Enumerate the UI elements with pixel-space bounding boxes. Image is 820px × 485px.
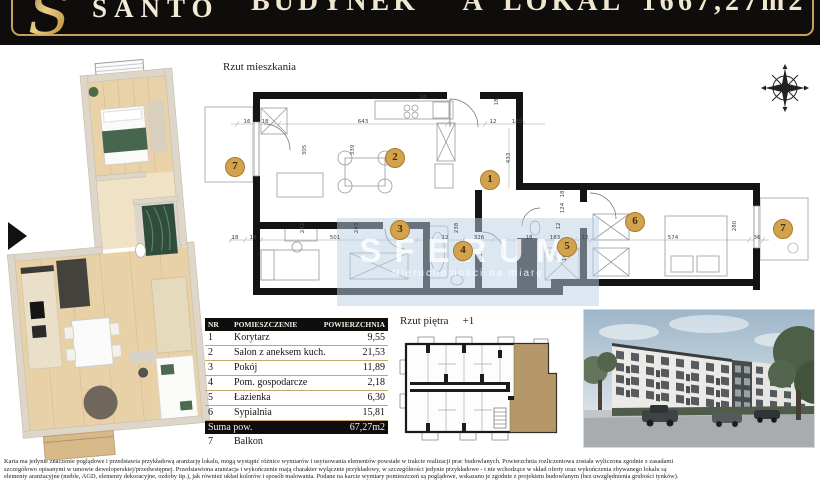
svg-text:S: S bbox=[28, 0, 70, 45]
header-bar: S SANTO BUDYNEK A LOKAL 16 67,27m2 bbox=[0, 0, 820, 45]
dimension-label: 12 bbox=[556, 223, 562, 230]
table-cell: 1 bbox=[208, 331, 234, 345]
apartment-3d-render bbox=[0, 58, 215, 460]
room-marker-7: 7 bbox=[773, 219, 793, 239]
dimension-label: 501 bbox=[330, 235, 341, 241]
table-cell: Łazienka bbox=[234, 391, 368, 405]
table-cell: 4 bbox=[208, 376, 234, 390]
dimension-label: 574 bbox=[668, 235, 679, 241]
table-row: 1Korytarz9,55 bbox=[205, 331, 388, 346]
table-cell: Salon z aneksem kuch. bbox=[234, 346, 363, 360]
disclaimer-line-1: Karta ma jedynie znaczenie poglądowe i p… bbox=[4, 458, 816, 466]
table-cell: 11,89 bbox=[363, 361, 385, 375]
disclaimer-line-3: elementy aranżacyjne (meble, AGD, elemen… bbox=[4, 473, 816, 481]
dimension-label: 12 bbox=[490, 119, 497, 125]
room-table: NR POMIESZCZENIE POWIERZCHNIA 1Korytarz9… bbox=[205, 318, 388, 448]
col-nr: NR bbox=[208, 318, 234, 331]
building-render-photo bbox=[583, 309, 815, 448]
disclaimer-line-2: szczegółowo opisanymi w umowie deweloper… bbox=[4, 466, 816, 474]
room-marker-6: 6 bbox=[625, 212, 645, 232]
table-row: 4Pom. gospodarcze2,18 bbox=[205, 376, 388, 391]
dimension-label: 18 bbox=[232, 235, 239, 241]
dimension-label: 433 bbox=[506, 153, 512, 164]
room-marker-4: 4 bbox=[453, 241, 473, 261]
dimension-label: 305 bbox=[302, 145, 308, 156]
room-marker-2: 2 bbox=[385, 148, 405, 168]
table-total-row: Suma pow. 67,27m2 bbox=[205, 421, 388, 434]
compass-icon bbox=[761, 64, 809, 112]
dimension-label: 16 bbox=[244, 119, 251, 125]
watermark: SFERUM Nieruchomości na miarę bbox=[337, 218, 599, 306]
table-cell: 5 bbox=[208, 391, 234, 405]
table-row: 5Łazienka6,30 bbox=[205, 391, 388, 406]
table-cell: Pokój bbox=[234, 361, 363, 375]
nav-arrow-icon[interactable] bbox=[8, 222, 27, 250]
area-label: 67,27m2 bbox=[678, 0, 806, 18]
table-row: 6Sypialnia15,81 bbox=[205, 406, 388, 421]
room-marker-3: 3 bbox=[390, 220, 410, 240]
table-header-row: NR POMIESZCZENIE POWIERZCHNIA bbox=[205, 318, 388, 331]
table-cell: 9,55 bbox=[368, 331, 386, 345]
table-balkon-row: 7 Balkon bbox=[205, 434, 388, 448]
table-cell: 6,30 bbox=[368, 391, 386, 405]
table-cell: 21,53 bbox=[363, 346, 386, 360]
floor-overview-label: Rzut piętra bbox=[400, 315, 449, 327]
floor-overview-plan bbox=[398, 330, 570, 448]
dimension-label: 280 bbox=[732, 221, 738, 232]
dimension-label: 242 bbox=[300, 223, 306, 234]
brochure-page: S SANTO BUDYNEK A LOKAL 16 67,27m2 bbox=[0, 0, 820, 485]
table-cell: 15,81 bbox=[363, 406, 386, 420]
dimension-label: 18 bbox=[250, 235, 257, 241]
table-cell: 2,18 bbox=[368, 376, 386, 390]
dimension-label: 18 bbox=[262, 119, 269, 125]
dimension-label: 12 bbox=[582, 235, 589, 241]
dimension-label: 124 bbox=[560, 203, 566, 214]
dimension-label: 643 bbox=[358, 119, 369, 125]
building-label: BUDYNEK A bbox=[251, 0, 487, 18]
watermark-tagline: Nieruchomości na miarę bbox=[337, 268, 599, 279]
table-cell: 2 bbox=[208, 346, 234, 360]
col-room: POMIESZCZENIE bbox=[234, 318, 324, 331]
table-cell: 6 bbox=[208, 406, 234, 420]
col-area: POWIERZCHNIA bbox=[324, 318, 385, 331]
dimension-label: 36 bbox=[754, 235, 761, 241]
table-row: 2Salon z aneksem kuch.21,53 bbox=[205, 346, 388, 361]
total-value: 67,27m2 bbox=[350, 421, 385, 434]
dimension-label: 16 bbox=[420, 95, 427, 101]
dimension-label: 243 bbox=[354, 223, 360, 234]
dimension-label: 12 bbox=[442, 235, 449, 241]
dimension-label: 185 bbox=[512, 119, 523, 125]
table-rows: 1Korytarz9,552Salon z aneksem kuch.21,53… bbox=[205, 331, 388, 421]
dimension-label: 326 bbox=[474, 235, 485, 241]
unit-label: LOKAL 16 bbox=[503, 0, 678, 18]
table-cell: Sypialnia bbox=[234, 406, 363, 420]
table-cell: Pom. gospodarcze bbox=[234, 376, 368, 390]
room-marker-1: 1 bbox=[480, 170, 500, 190]
dimension-label: 18 bbox=[560, 191, 566, 198]
floor-level: +1 bbox=[463, 315, 475, 327]
table-cell: 3 bbox=[208, 361, 234, 375]
brand-name: SANTO bbox=[92, 0, 220, 24]
floor-overview-title: Rzut piętra+1 bbox=[400, 315, 474, 327]
table-row: 3Pokój11,89 bbox=[205, 361, 388, 376]
table-cell: Korytarz bbox=[234, 331, 368, 345]
total-label: Suma pow. bbox=[208, 421, 350, 434]
room-marker-7: 7 bbox=[225, 157, 245, 177]
dimension-label: 238 bbox=[454, 223, 460, 234]
balkon-name: Balkon bbox=[234, 434, 263, 448]
dimension-label: 339 bbox=[350, 145, 356, 156]
dimension-label: 18 bbox=[494, 99, 500, 106]
room-marker-5: 5 bbox=[557, 237, 577, 257]
santo-logo-icon: S bbox=[20, 0, 90, 45]
apartment-floor-plan: SFERUM Nieruchomości na miarę 1618643121… bbox=[195, 58, 815, 308]
disclaimer-text: Karta ma jedynie znaczenie poglądowe i p… bbox=[4, 458, 816, 481]
dimension-label: 18 bbox=[526, 235, 533, 241]
balkon-nr: 7 bbox=[208, 434, 234, 448]
